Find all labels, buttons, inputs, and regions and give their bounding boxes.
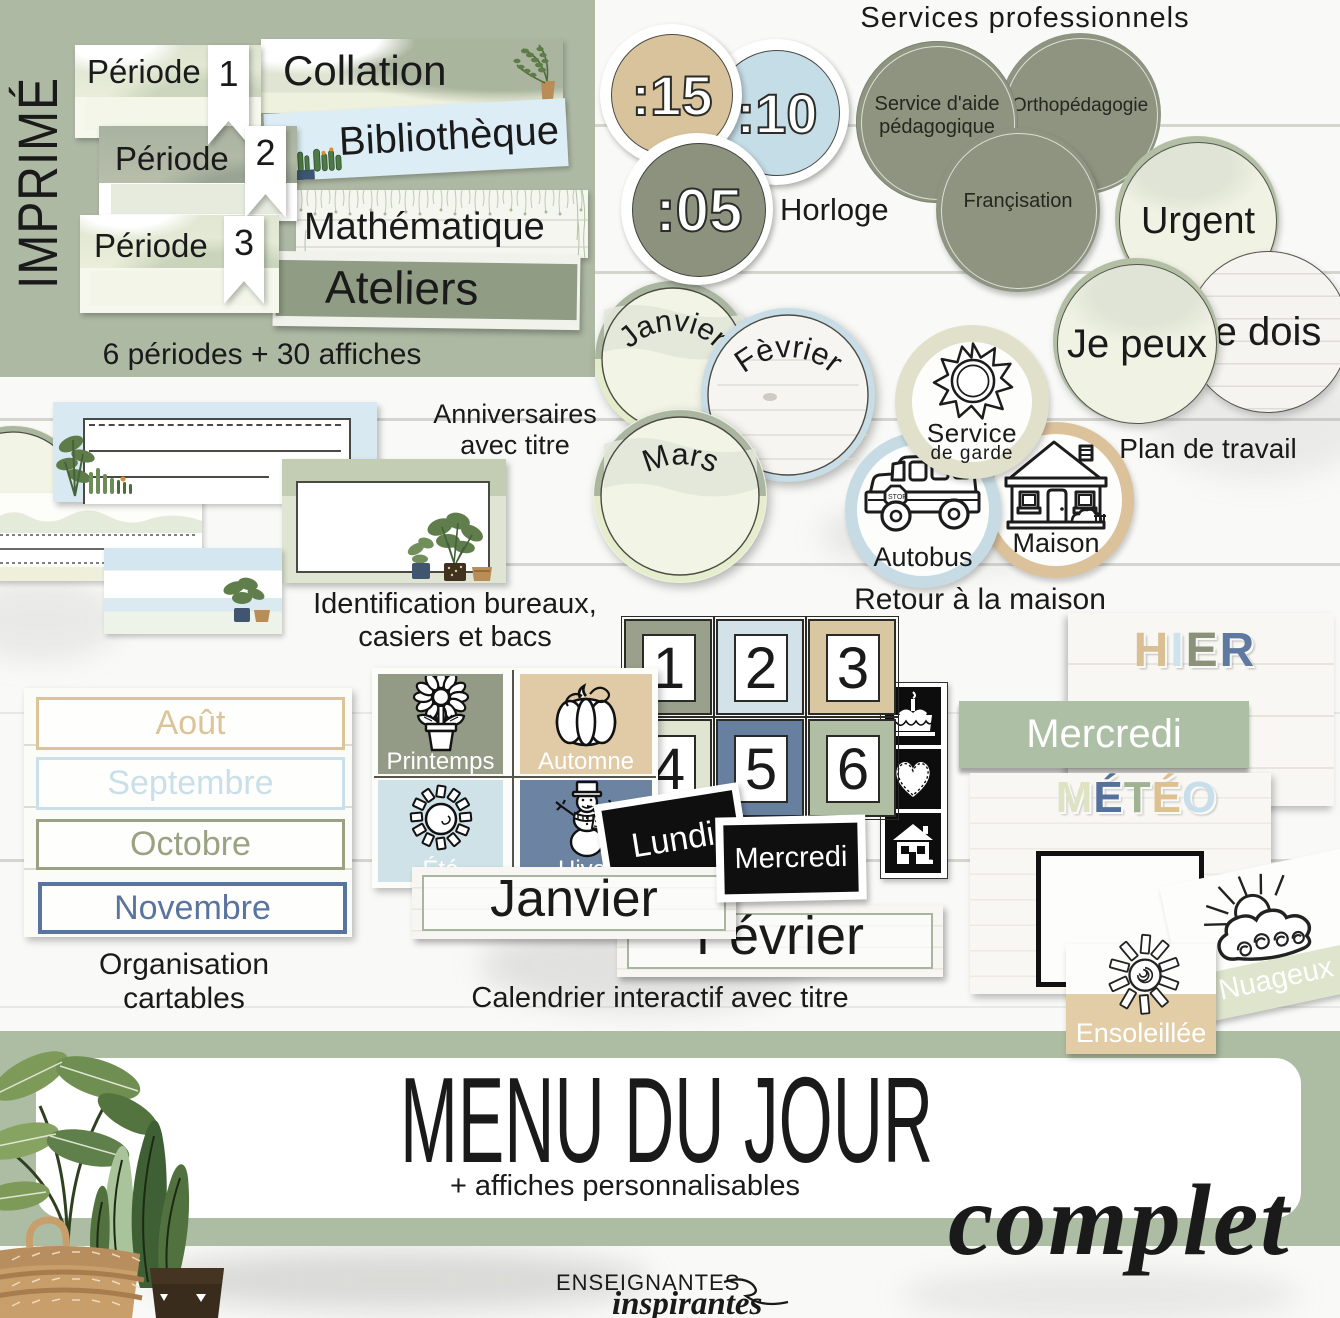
svg-text:STOP: STOP bbox=[888, 494, 907, 501]
